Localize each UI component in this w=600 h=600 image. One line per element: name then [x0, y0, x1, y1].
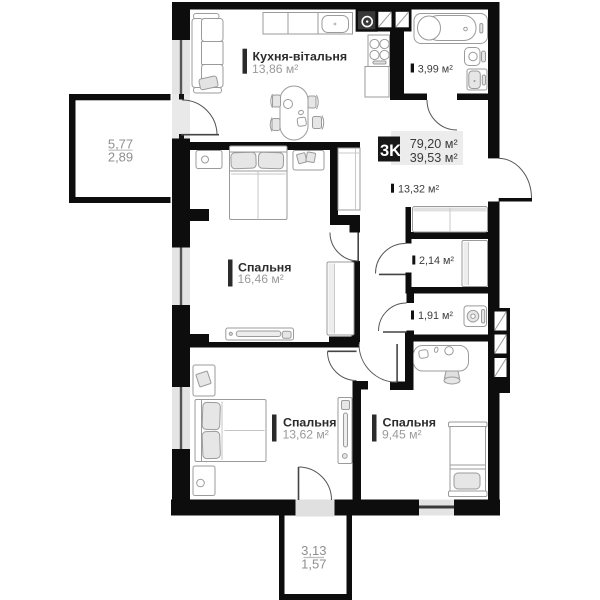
svg-text:2,14 м²: 2,14 м²: [419, 255, 454, 267]
svg-text:13,32 м²: 13,32 м²: [398, 183, 439, 195]
svg-text:9,45 м²: 9,45 м²: [382, 428, 422, 442]
svg-text:13,62 м²: 13,62 м²: [283, 428, 329, 442]
svg-text:16,46 м²: 16,46 м²: [238, 272, 284, 286]
svg-text:1,57: 1,57: [301, 557, 326, 572]
svg-text:2,89: 2,89: [108, 150, 133, 165]
svg-text:79,20 м²: 79,20 м²: [410, 137, 458, 151]
svg-text:3K: 3K: [380, 142, 401, 160]
svg-text:13,86 м²: 13,86 м²: [252, 62, 298, 76]
svg-text:39,53 м²: 39,53 м²: [410, 151, 458, 165]
svg-text:1,91 м²: 1,91 м²: [418, 310, 453, 322]
svg-text:3,99 м²: 3,99 м²: [418, 63, 453, 75]
